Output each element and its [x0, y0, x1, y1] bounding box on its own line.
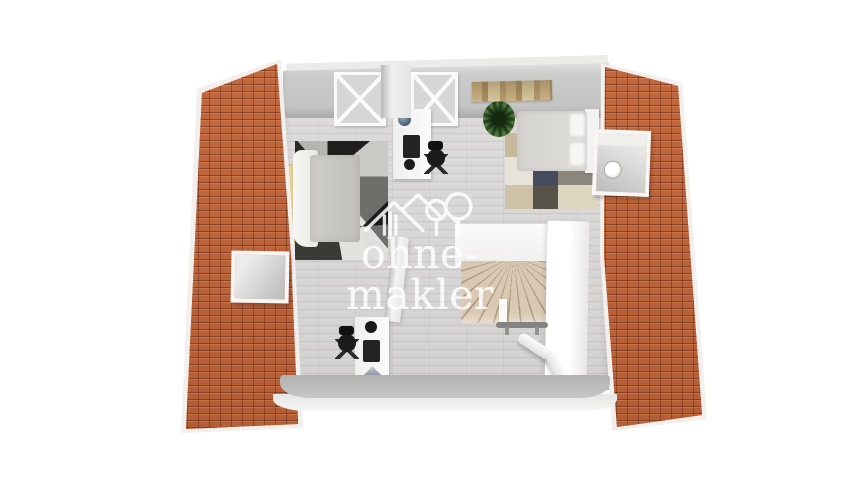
dormer-window-left	[231, 250, 290, 303]
attic-bottom-wall	[280, 375, 610, 398]
office-chair	[335, 326, 359, 366]
newel-post	[499, 299, 507, 323]
pillow	[569, 142, 585, 166]
handrail	[496, 322, 548, 328]
duvet	[310, 155, 360, 242]
desk-speaker	[404, 159, 415, 170]
washbasin	[603, 160, 622, 179]
desk-lamp	[365, 321, 377, 333]
dormer-window-right	[592, 129, 651, 197]
roof-window-left	[334, 72, 386, 126]
pillow	[569, 113, 585, 137]
office-chair	[424, 141, 448, 177]
potted-plant	[483, 101, 515, 137]
wall-artwork	[472, 80, 552, 102]
chair-seat	[338, 334, 356, 352]
monitor	[363, 340, 380, 362]
rug-patch	[505, 185, 533, 209]
floor-plan-3d-render: ohne-makler	[0, 0, 853, 480]
chair-seat	[427, 149, 445, 167]
chair-back	[428, 141, 443, 150]
wall-pillar	[381, 65, 411, 118]
bed-right	[517, 109, 599, 173]
chair-back	[339, 326, 354, 335]
monitor	[403, 135, 420, 158]
dormer-counter	[598, 133, 647, 147]
rug-patch	[533, 185, 559, 209]
x-brace-icon	[337, 75, 383, 123]
